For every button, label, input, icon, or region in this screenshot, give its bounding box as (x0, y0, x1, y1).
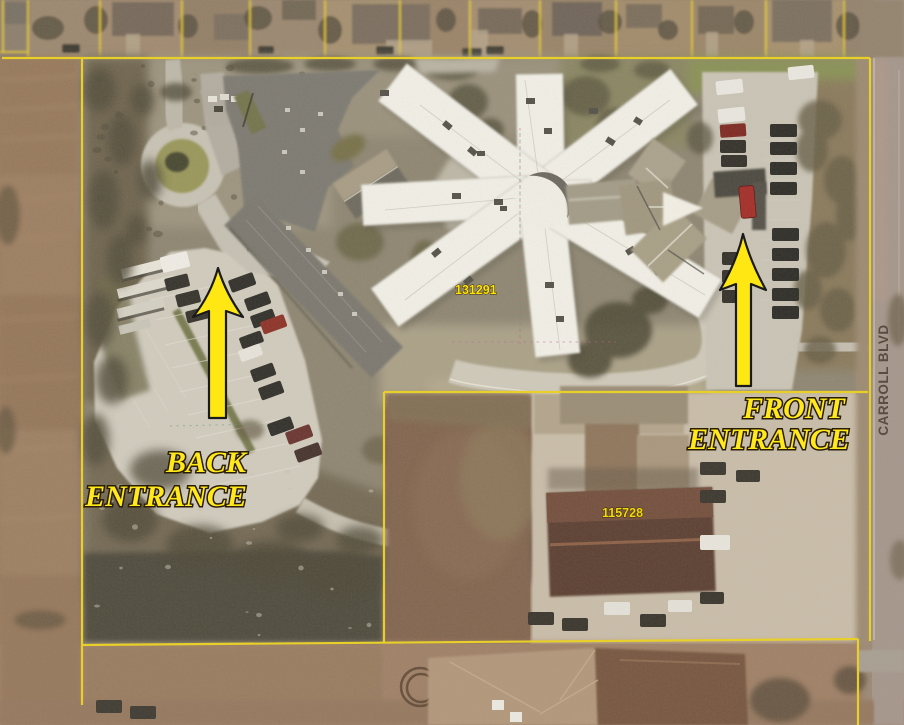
svg-text:115728: 115728 (602, 506, 643, 520)
svg-text:CARROLL BLVD: CARROLL BLVD (876, 324, 891, 435)
svg-text:FRONT: FRONT (742, 392, 846, 425)
svg-text:131291: 131291 (455, 283, 497, 297)
svg-text:ENTRANCE: ENTRANCE (84, 480, 247, 513)
svg-text:ENTRANCE: ENTRANCE (687, 423, 850, 456)
svg-text:BACK: BACK (165, 446, 248, 479)
